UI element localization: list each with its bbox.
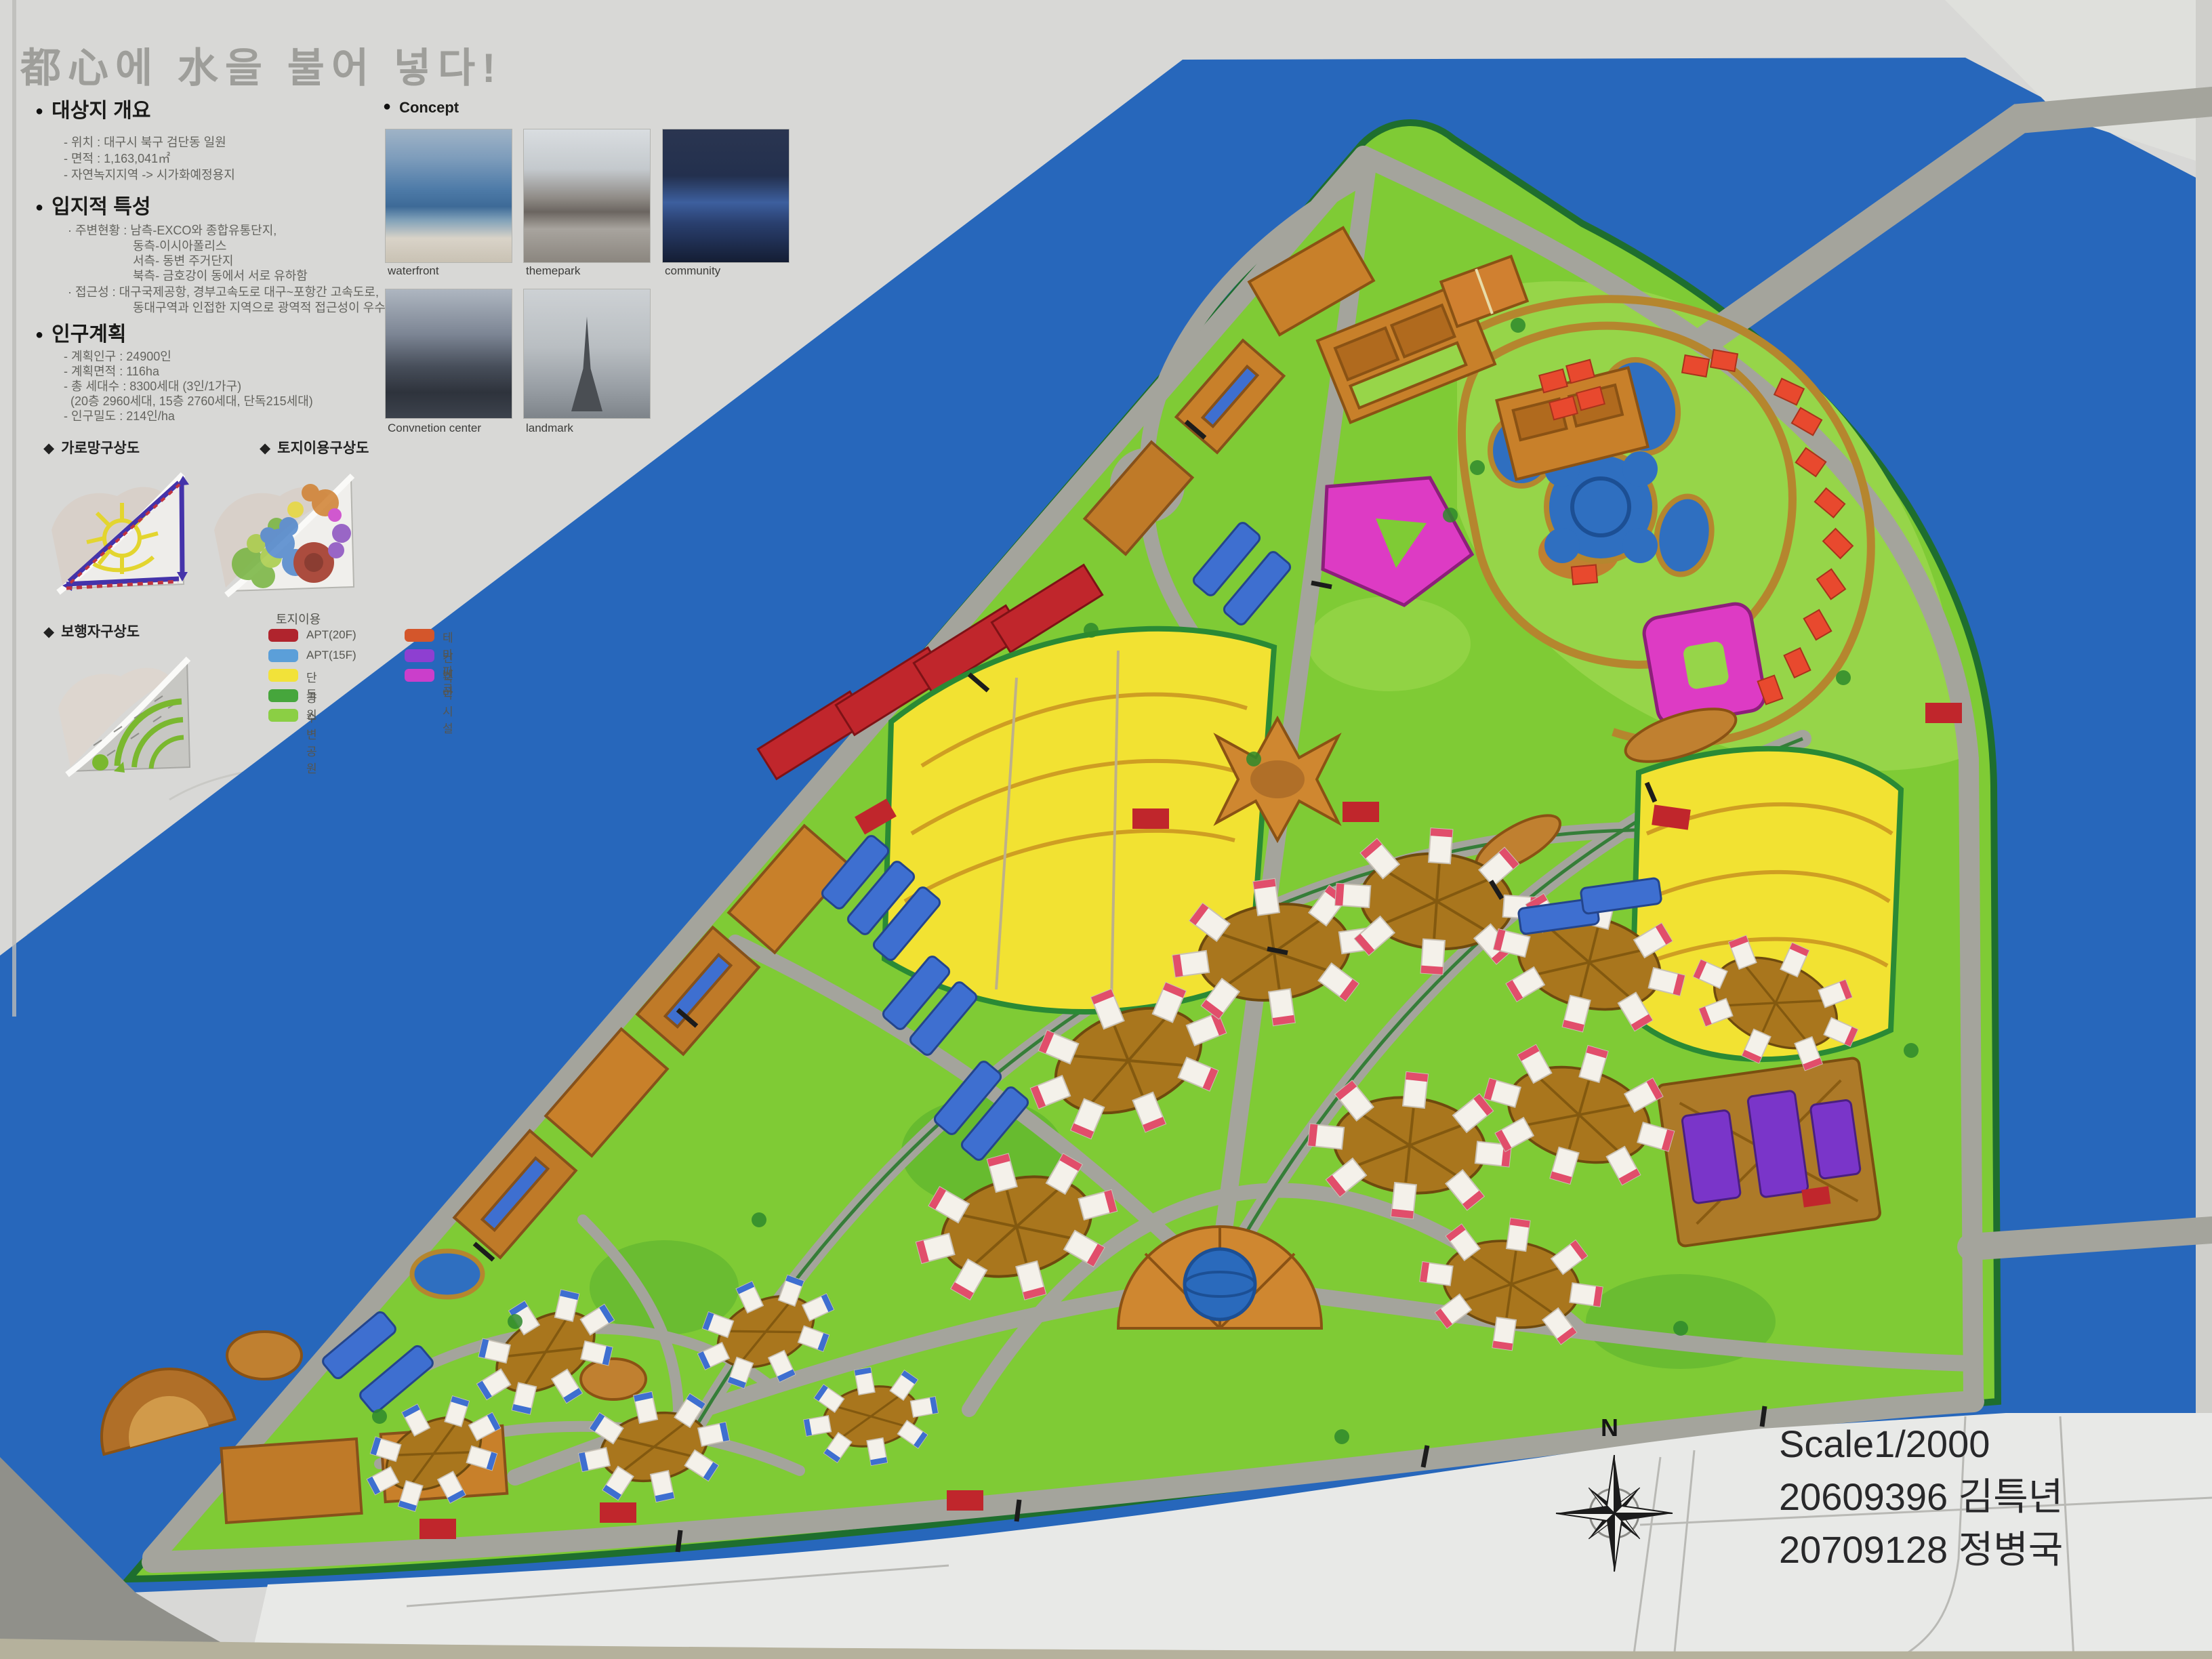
concept-heading: ●Concept	[383, 99, 459, 117]
legend-label: APT(15F)	[306, 649, 356, 662]
diamond-icon: ◆	[43, 441, 54, 456]
overview-item: - 면적 : 1,163,041㎡	[64, 149, 170, 167]
eiffel-tower-shape	[571, 316, 602, 411]
site-plan-map	[0, 0, 2212, 1659]
section-location-heading: ●입지적 특성	[35, 190, 150, 220]
concept-image-convention	[385, 289, 512, 419]
concept-image-themepark	[523, 129, 651, 263]
convention-block	[1657, 1057, 1881, 1246]
legend-title: 토지이용	[276, 610, 321, 628]
compass-north-label: N	[1601, 1414, 1618, 1442]
concept-image-landmark	[523, 289, 651, 419]
student-id: 20709128 정병국	[1779, 1523, 2063, 1576]
diagram-pedestrian-label: ◆보행자구상도	[43, 621, 140, 641]
legend-swatch	[268, 689, 298, 702]
diagram-landuse-label: ◆토지이용구상도	[260, 437, 369, 457]
location-item: 북측- 금호강이 동에서 서로 유하함	[133, 266, 308, 284]
legend-swatch	[405, 669, 434, 682]
bullet-icon: ●	[35, 200, 43, 215]
student-id: 20609396 김특년	[1779, 1471, 2063, 1523]
pedestrian-diagram	[53, 644, 216, 783]
diamond-icon: ◆	[260, 441, 270, 456]
legend-label: 수변공원	[306, 708, 317, 776]
legend-swatch	[405, 629, 434, 642]
population-item: - 인구밀도 : 214인/ha	[64, 407, 175, 424]
legend-swatch	[268, 649, 298, 662]
concept-label: themepark	[526, 264, 580, 278]
concept-label: landmark	[526, 422, 573, 435]
overview-item: - 자연녹지지역 -> 시가화예정용지	[64, 165, 235, 183]
landuse-diagram	[209, 462, 375, 605]
diagram-street-label: ◆가로망구상도	[43, 437, 140, 457]
legend-swatch	[405, 649, 434, 662]
bullet-icon: ●	[35, 327, 43, 342]
legend-label: 숙박시설	[443, 668, 453, 736]
presentation-board: 都心에 水을 불어 넣다! ●대상지 개요 - 위치 : 대구시 북구 검단동 …	[0, 0, 2212, 1659]
concept-label: community	[665, 264, 720, 278]
diamond-icon: ◆	[43, 624, 54, 640]
scale-text: Scale1/2000	[1779, 1418, 2063, 1471]
legend-swatch	[268, 629, 298, 642]
board-right-edge	[2196, 0, 2212, 1659]
section-population-heading: ●인구계획	[35, 317, 127, 347]
legend-swatch	[268, 669, 298, 682]
scale-credits: Scale1/2000 20609396 김특년 20709128 정병국	[1779, 1418, 2063, 1576]
concept-image-community	[662, 129, 790, 263]
street-network-diagram	[46, 462, 205, 605]
concept-image-waterfront	[385, 129, 512, 263]
bullet-icon: ●	[35, 104, 43, 119]
concept-label: Convnetion center	[388, 422, 481, 435]
section-overview-heading: ●대상지 개요	[35, 94, 150, 123]
legend-label: APT(20F)	[306, 628, 356, 642]
overview-item: - 위치 : 대구시 북구 검단동 일원	[64, 133, 226, 150]
bullet-icon: ●	[383, 99, 391, 114]
legend-swatch	[268, 709, 298, 722]
board-left-edge	[12, 0, 16, 1017]
location-item: 동대구역과 인접한 지역으로 광역적 접근성이 우수한 지역	[133, 298, 422, 316]
page-title: 都心에 水을 불어 넣다!	[20, 35, 502, 94]
concept-label: waterfront	[388, 264, 439, 278]
